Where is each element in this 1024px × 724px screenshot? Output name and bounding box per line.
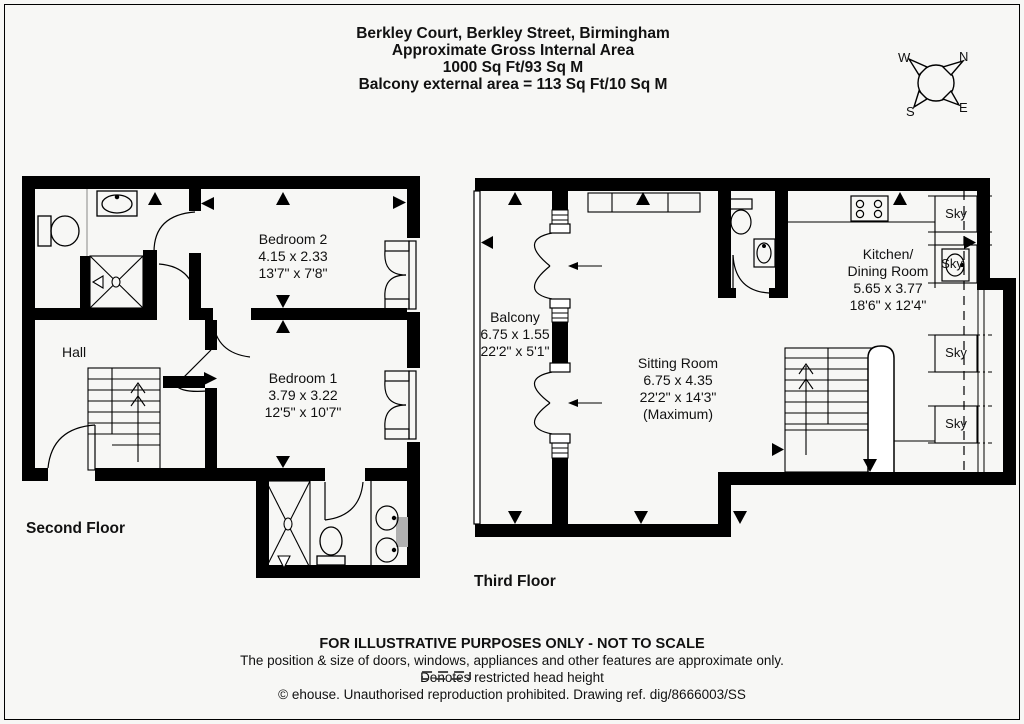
compass-south-label: S xyxy=(906,104,915,119)
skylight-label-3: Sky xyxy=(945,345,967,360)
toilet-icon-3 xyxy=(729,199,752,234)
hob-icon xyxy=(851,196,888,221)
second-floor-plan xyxy=(22,176,420,578)
wc-door-arc xyxy=(733,255,769,293)
second-floor-door-gaps xyxy=(48,238,420,547)
skylight-label-1: Sky xyxy=(945,206,967,221)
floorplan-page: { "header": { "line1": "Berkley Court, B… xyxy=(0,0,1024,724)
door-measure-arrows xyxy=(568,262,602,407)
compass-east-label: E xyxy=(959,100,968,115)
stairs-icon xyxy=(88,368,160,470)
footer-disclaimer: FOR ILLUSTRATIVE PURPOSES ONLY - NOT TO … xyxy=(319,636,704,652)
second-floor-walls xyxy=(22,176,420,578)
floorplan-canvas xyxy=(0,0,1024,724)
room-label-sitting: Sitting Room 6.75 x 4.35 22'2" x 14'3" (… xyxy=(638,355,718,423)
compass-west-label: W xyxy=(898,50,910,65)
third-floor-label: Third Floor xyxy=(474,573,556,591)
footer-legend: Denotes restricted head height xyxy=(420,670,604,685)
compass-icon xyxy=(909,59,963,107)
second-floor-label: Second Floor xyxy=(26,520,125,538)
skylight-label-2: Sky xyxy=(941,256,963,271)
third-floor-plan xyxy=(474,178,1016,537)
roof-edge-lines xyxy=(894,290,984,472)
title-address: Berkley Court, Berkley Street, Birmingha… xyxy=(356,25,670,42)
shower-icon xyxy=(90,256,143,308)
title-balcony-area: Balcony external area = 113 Sq Ft/10 Sq … xyxy=(356,76,670,93)
basin-icon xyxy=(97,191,137,216)
room-label-hall: Hall xyxy=(62,344,86,361)
skylight-label-4: Sky xyxy=(945,416,967,431)
title-area-value: 1000 Sq Ft/93 Sq M xyxy=(356,59,670,76)
title-area-label: Approximate Gross Internal Area xyxy=(356,42,670,59)
room-label-bedroom1: Bedroom 1 3.79 x 3.22 12'5" x 10'7" xyxy=(265,370,342,421)
basin-icon-3 xyxy=(754,239,775,267)
toilet-icon xyxy=(38,216,79,246)
shower-icon-2 xyxy=(266,481,310,568)
restricted-head-height-symbol xyxy=(420,670,474,682)
room-label-balcony: Balcony 6.75 x 1.55 22'2" x 5'1" xyxy=(480,309,549,360)
basin-icon-2 xyxy=(371,481,398,565)
compass-north-label: N xyxy=(959,49,968,64)
footer-approx-note: The position & size of doors, windows, a… xyxy=(240,653,784,668)
balcony-outer-wall xyxy=(474,191,480,524)
toilet-icon-2 xyxy=(317,527,345,565)
footer-copyright: © ehouse. Unauthorised reproduction proh… xyxy=(278,687,746,702)
curved-wall xyxy=(868,346,894,472)
room-label-kitchen: Kitchen/ Dining Room 5.65 x 3.77 18'6" x… xyxy=(848,246,929,314)
room-label-bedroom2: Bedroom 2 4.15 x 2.33 13'7" x 7'8" xyxy=(258,231,327,282)
stairs-icon-2 xyxy=(785,348,872,472)
